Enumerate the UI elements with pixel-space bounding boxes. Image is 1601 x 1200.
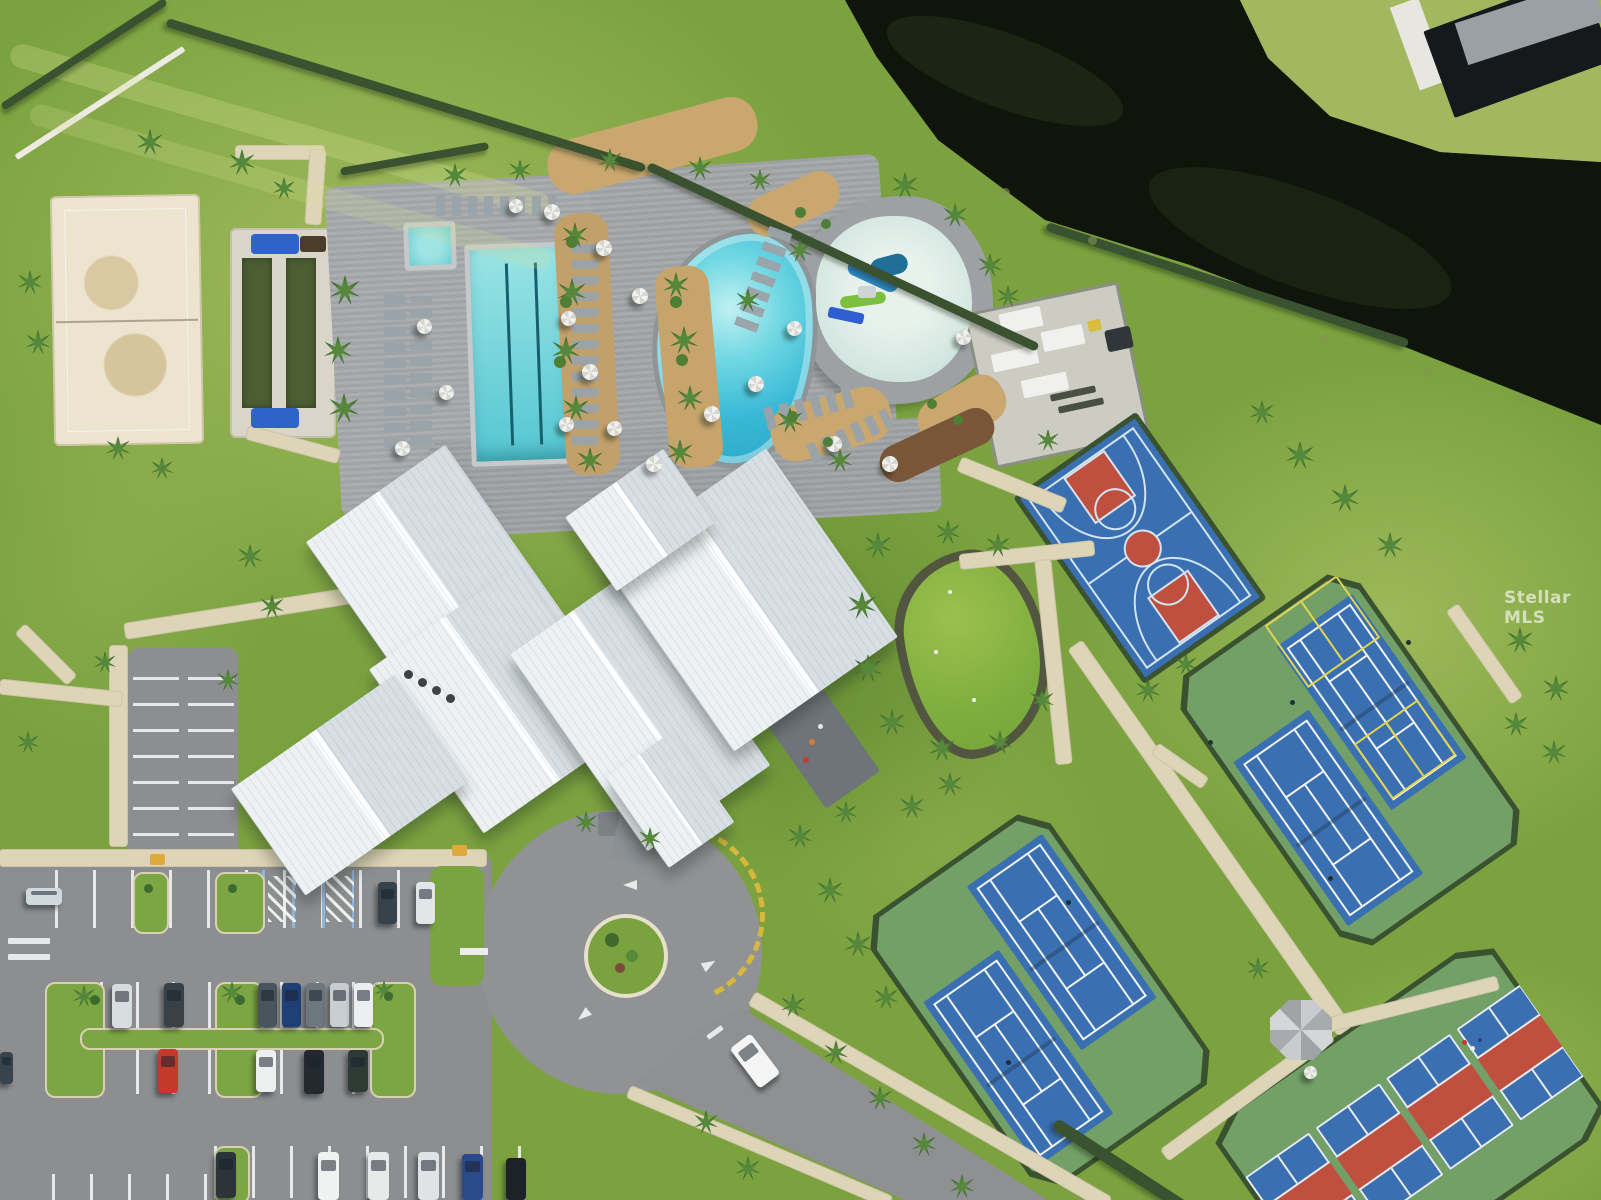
walkway bbox=[0, 680, 122, 707]
crosswalk-line bbox=[8, 938, 50, 944]
palm-tree bbox=[835, 801, 857, 823]
parked-car bbox=[378, 882, 397, 924]
landscape-dot bbox=[1516, 394, 1525, 403]
landscape-dot bbox=[795, 207, 806, 218]
landscape-dot bbox=[953, 415, 963, 425]
landscape-dot bbox=[1066, 900, 1071, 905]
pavement-arrow bbox=[618, 880, 637, 890]
landscape-dot bbox=[1321, 334, 1330, 343]
parked-car bbox=[0, 1052, 13, 1084]
parking-lines bbox=[52, 1174, 214, 1200]
landscape-dot bbox=[1462, 1040, 1467, 1045]
landscape-dot bbox=[1478, 1038, 1482, 1042]
patio-umbrella bbox=[607, 421, 622, 436]
pickleball-complex bbox=[1205, 933, 1601, 1200]
parked-car bbox=[348, 1050, 368, 1092]
palm-tree bbox=[238, 544, 262, 568]
parked-car bbox=[306, 983, 325, 1027]
parked-car bbox=[318, 1152, 339, 1200]
landscape-dot bbox=[90, 995, 100, 1005]
landscape-dot bbox=[626, 950, 638, 962]
landscape-dot bbox=[1406, 640, 1411, 645]
parked-car bbox=[354, 983, 373, 1027]
patio-umbrella bbox=[748, 376, 764, 392]
bocce-canopy bbox=[251, 408, 299, 428]
bocce-bench bbox=[300, 236, 326, 252]
patio-umbrella bbox=[596, 240, 612, 256]
bocce-lane bbox=[286, 258, 316, 408]
landscape-dot bbox=[676, 354, 688, 366]
landscape-dot bbox=[948, 590, 952, 594]
palm-tree bbox=[736, 1156, 760, 1180]
parked-car bbox=[112, 984, 132, 1028]
landscape-dot bbox=[1001, 188, 1010, 197]
palm-tree bbox=[17, 731, 39, 753]
palm-tree bbox=[817, 877, 843, 903]
parking-island bbox=[80, 1028, 384, 1050]
landscape-dot bbox=[615, 963, 625, 973]
putting-green bbox=[884, 541, 1061, 768]
landscape-dot bbox=[1328, 876, 1333, 881]
palm-tree bbox=[845, 931, 871, 957]
parking-lines bbox=[326, 876, 354, 922]
landscape-dot bbox=[432, 686, 441, 695]
stop-bar bbox=[460, 948, 488, 955]
parking-lines bbox=[133, 654, 179, 836]
parked-car bbox=[256, 1050, 276, 1092]
landscape-dot bbox=[821, 219, 831, 229]
patio-umbrella bbox=[1304, 1066, 1317, 1079]
landscape-dot bbox=[787, 411, 798, 422]
palm-tree bbox=[1542, 740, 1566, 764]
landscape-dot bbox=[1470, 1046, 1475, 1051]
lounger-row bbox=[436, 196, 556, 216]
parked-car bbox=[418, 1152, 439, 1200]
palm-tree bbox=[18, 270, 42, 294]
tactile-pad bbox=[150, 854, 165, 865]
bocce-lane bbox=[242, 258, 272, 408]
palm-tree bbox=[892, 172, 918, 198]
watermark: Stellar MLS bbox=[1504, 588, 1601, 628]
lounger-row bbox=[572, 240, 598, 445]
parking-island bbox=[215, 872, 265, 934]
parked-car bbox=[368, 1152, 389, 1200]
landscape-dot bbox=[144, 884, 153, 893]
landscape-dot bbox=[228, 884, 237, 893]
parked-car bbox=[282, 983, 301, 1027]
parked-car bbox=[158, 1049, 178, 1093]
landscape-dot bbox=[818, 724, 823, 729]
patio-umbrella bbox=[544, 204, 560, 220]
lounger-row bbox=[384, 288, 406, 448]
patio-umbrella bbox=[509, 199, 523, 213]
parked-car bbox=[26, 888, 62, 905]
patio-umbrella bbox=[632, 288, 648, 304]
patio-umbrella bbox=[646, 456, 662, 472]
landscape-dot bbox=[803, 757, 809, 763]
walkway bbox=[124, 588, 352, 638]
landscape-dot bbox=[554, 356, 566, 368]
grass-verge bbox=[430, 866, 484, 986]
patio-umbrella bbox=[582, 364, 598, 380]
landscape-dot bbox=[1088, 236, 1097, 245]
landscape-dot bbox=[235, 995, 245, 1005]
landscape-dot bbox=[560, 296, 572, 308]
palm-tree bbox=[874, 985, 898, 1009]
splash-pad bbox=[816, 216, 972, 382]
sand-volleyball-court bbox=[50, 194, 204, 447]
palm-tree bbox=[900, 794, 924, 818]
landscape-dot bbox=[1290, 700, 1295, 705]
gazebo bbox=[1270, 1000, 1332, 1060]
palm-tree bbox=[1247, 957, 1269, 979]
palm-tree bbox=[1507, 627, 1533, 653]
parked-car bbox=[304, 1050, 324, 1094]
palm-tree bbox=[151, 457, 173, 479]
landscape-dot bbox=[972, 698, 976, 702]
landscape-dot bbox=[418, 678, 427, 687]
palm-tree bbox=[1331, 484, 1359, 512]
parked-car bbox=[416, 882, 435, 924]
landscape-dot bbox=[934, 650, 938, 654]
palm-tree bbox=[936, 520, 960, 544]
parked-car bbox=[258, 983, 277, 1027]
palm-tree bbox=[26, 330, 50, 354]
parked-car bbox=[462, 1154, 483, 1200]
landscape-dot bbox=[1006, 1060, 1011, 1065]
patio-umbrella bbox=[882, 456, 898, 472]
palm-tree bbox=[1543, 675, 1569, 701]
palm-tree bbox=[788, 824, 812, 848]
patio-umbrella bbox=[395, 441, 410, 456]
patio-umbrella bbox=[956, 330, 971, 345]
palm-tree bbox=[1250, 400, 1274, 424]
landscape-dot bbox=[404, 670, 413, 679]
palm-tree bbox=[1377, 532, 1403, 558]
patio-umbrella bbox=[439, 385, 454, 400]
landscape-dot bbox=[823, 437, 833, 447]
play-structure bbox=[858, 286, 876, 298]
landscape-dot bbox=[1201, 288, 1210, 297]
palm-tree bbox=[879, 709, 905, 735]
palm-tree bbox=[1286, 441, 1314, 469]
landscape-dot bbox=[446, 694, 455, 703]
aerial-photo-stage: Stellar MLS bbox=[0, 0, 1601, 1200]
landscape-dot bbox=[384, 992, 393, 1001]
parking-island bbox=[133, 872, 169, 934]
parked-car bbox=[506, 1158, 526, 1200]
bocce-courts bbox=[232, 230, 334, 436]
parked-car bbox=[216, 1152, 236, 1198]
crosswalk-line bbox=[8, 954, 50, 960]
patio-umbrella bbox=[787, 321, 802, 336]
palm-tree bbox=[1504, 712, 1528, 736]
walkway bbox=[16, 624, 76, 684]
parked-car bbox=[164, 983, 184, 1027]
landscape-dot bbox=[1208, 740, 1213, 745]
patio-umbrella bbox=[561, 311, 576, 326]
landscape-dot bbox=[566, 236, 578, 248]
landscape-dot bbox=[605, 933, 619, 947]
landscape-dot bbox=[670, 296, 682, 308]
patio-umbrella bbox=[417, 319, 432, 334]
landscape-dot bbox=[809, 739, 815, 745]
patio-umbrella bbox=[704, 406, 720, 422]
bocce-canopy bbox=[251, 234, 299, 254]
parking-lines bbox=[268, 876, 296, 922]
walkway bbox=[0, 850, 486, 866]
palm-tree bbox=[865, 532, 891, 558]
landscape-dot bbox=[1424, 368, 1433, 377]
palm-tree bbox=[938, 772, 962, 796]
walkway bbox=[110, 646, 127, 846]
landscape-dot bbox=[927, 399, 937, 409]
palm-tree bbox=[1136, 678, 1160, 702]
parked-car bbox=[330, 983, 349, 1027]
tactile-pad bbox=[452, 845, 467, 856]
